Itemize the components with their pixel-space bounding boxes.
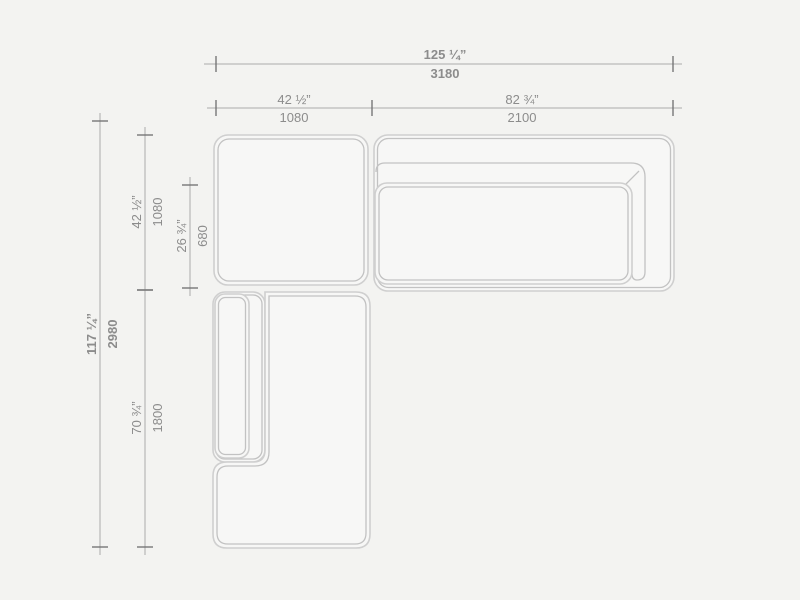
sofa-technical-drawing-page: 125 ¼” 3180 42 ½” 1080 82 ¾” 2100 117 ¼”… — [0, 0, 800, 600]
right-sofa-seat-cushion — [375, 183, 632, 284]
module-corner-seat — [214, 135, 368, 285]
dimension-annotations: 125 ¼” 3180 42 ½” 1080 82 ¾” 2100 117 ¼”… — [84, 47, 682, 555]
dim-right-width-mm: 2100 — [508, 110, 537, 125]
dim-seat-depth-mm: 680 — [195, 225, 210, 247]
dim-left-width-inches: 42 ½” — [277, 92, 310, 107]
sectional-sofa-plan-drawing: 125 ¼” 3180 42 ½” 1080 82 ¾” 2100 117 ¼”… — [0, 0, 800, 600]
dim-lower-left-height-inches: 70 ¾” — [129, 401, 144, 434]
dim-upper-left-height-mm: 1080 — [150, 198, 165, 227]
dim-split-widths: 42 ½” 1080 82 ¾” 2100 — [207, 92, 682, 125]
dim-total-height-mm: 2980 — [105, 320, 120, 349]
dim-total-width-mm: 3180 — [431, 66, 460, 81]
dim-seat-depth: 26 ¾” 680 — [174, 177, 210, 296]
chaise-backrest-cushion — [215, 294, 249, 458]
dim-total-width-inches: 125 ¼” — [424, 47, 467, 62]
sofa-modules — [213, 135, 674, 548]
dim-total-height: 117 ¼” 2980 — [84, 113, 120, 555]
corner-seat-outline — [214, 135, 368, 285]
dim-total-height-inches: 117 ¼” — [84, 313, 99, 355]
module-bottom-chaise — [213, 292, 370, 548]
dim-total-width: 125 ¼” 3180 — [204, 47, 682, 81]
dim-lower-left-height: 70 ¾” 1800 — [129, 282, 165, 555]
dim-seat-depth-inches: 26 ¾” — [174, 219, 189, 252]
module-right-sofa — [374, 135, 674, 291]
dim-upper-left-height-inches: 42 ½” — [129, 195, 144, 228]
dim-lower-left-height-mm: 1800 — [150, 404, 165, 433]
dim-left-width-mm: 1080 — [280, 110, 309, 125]
dim-right-width-inches: 82 ¾” — [505, 92, 538, 107]
dim-upper-left-height: 42 ½” 1080 — [129, 127, 165, 298]
